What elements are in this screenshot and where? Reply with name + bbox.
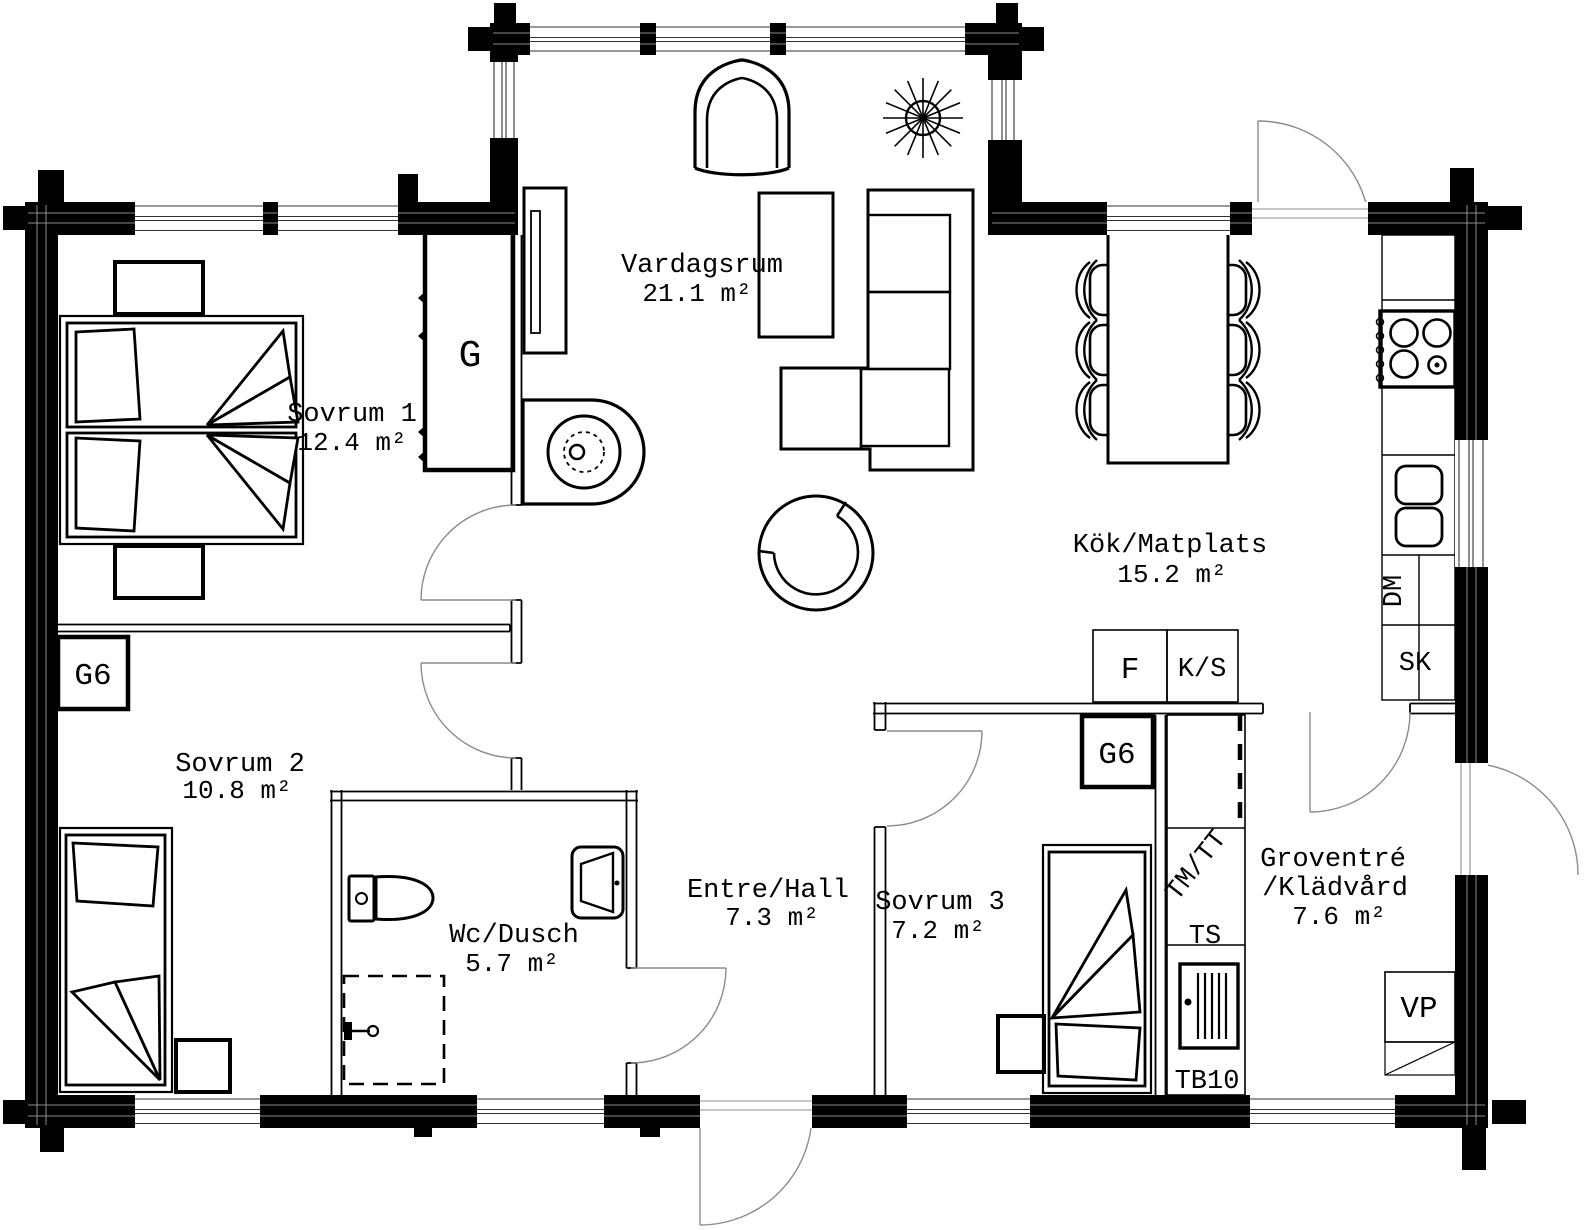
room-name: /Klädvård xyxy=(1262,874,1408,904)
room-name: Groventré xyxy=(1260,845,1406,875)
washbasin xyxy=(572,847,623,918)
room-name: Sovrum 3 xyxy=(875,888,1005,918)
log-corner xyxy=(494,3,516,23)
door-tb10-icon xyxy=(1180,964,1238,1048)
label-g6-sovrum2: G6 xyxy=(74,659,111,694)
kitchen-sink xyxy=(1396,466,1442,546)
log-corner xyxy=(1022,27,1044,51)
label-washer-dryer: TM/TT xyxy=(1161,825,1235,907)
pillow xyxy=(1056,1024,1140,1080)
label-drying-cabinet: TS xyxy=(1189,922,1221,952)
window xyxy=(477,1095,604,1128)
tv-cabinet xyxy=(524,188,566,353)
label-wardrobe-g: G xyxy=(459,335,482,378)
door-opening xyxy=(1455,763,1488,875)
bed-single-sovrum3 xyxy=(998,845,1151,1093)
room-label-sovrum1: Sovrum 1 12.4 m² xyxy=(287,400,417,458)
room-name: Sovrum 1 xyxy=(287,400,417,430)
room-name: Entre/Hall xyxy=(687,876,849,906)
round-chair xyxy=(759,496,873,610)
kitchen-counter xyxy=(1382,235,1455,700)
log-texture xyxy=(28,33,1485,1125)
window xyxy=(135,1095,260,1128)
log-corner xyxy=(640,1128,660,1137)
nightstand xyxy=(998,1016,1044,1072)
label-g6-sovrum3: G6 xyxy=(1098,738,1135,773)
armchair xyxy=(695,60,789,175)
room-area: 21.1 m² xyxy=(642,279,751,309)
exterior-walls xyxy=(3,3,1526,1170)
nightstand xyxy=(115,546,203,598)
window xyxy=(1250,1095,1395,1128)
shower xyxy=(344,976,444,1084)
room-name: Wc/Dusch xyxy=(449,921,579,951)
door-front-entrance xyxy=(700,1113,812,1225)
log-corner xyxy=(3,1100,25,1124)
door-wc xyxy=(631,968,726,1063)
label-fridge: F xyxy=(1121,653,1140,688)
door-opening xyxy=(700,1095,812,1128)
dining-set xyxy=(1077,233,1260,463)
room-area: 7.2 m² xyxy=(891,916,985,946)
window xyxy=(907,1095,1030,1128)
log-corner xyxy=(996,3,1018,23)
stove-cooktop xyxy=(1377,311,1456,387)
room-label-kok: Kök/Matplats 15.2 m² xyxy=(1073,531,1267,590)
label-dishwasher: DM xyxy=(1380,575,1410,607)
pillow xyxy=(73,843,158,906)
window xyxy=(135,202,263,235)
nightstand xyxy=(115,262,203,314)
door-sovrum1 xyxy=(421,505,516,600)
log-corner xyxy=(38,170,64,202)
room-label-entre: Entre/Hall 7.3 m² xyxy=(687,876,849,933)
window xyxy=(278,202,398,235)
log-corner xyxy=(1492,1100,1526,1124)
label-fridge-freezer: K/S xyxy=(1178,655,1227,685)
toilet xyxy=(349,876,433,921)
dining-table xyxy=(1108,233,1228,463)
window xyxy=(530,23,640,55)
nightstand xyxy=(176,1040,230,1092)
log-corner xyxy=(414,1128,432,1137)
room-area: 15.2 m² xyxy=(1117,560,1226,590)
wood-stove xyxy=(523,400,644,504)
log-corner xyxy=(398,174,418,202)
window xyxy=(656,23,770,55)
log-corner xyxy=(468,27,490,51)
room-area: 5.7 m² xyxy=(465,949,559,979)
door-opening xyxy=(1252,202,1368,235)
window xyxy=(786,23,965,55)
bed-double xyxy=(60,262,303,598)
window xyxy=(988,80,1022,140)
label-tall-cabinet: SK xyxy=(1399,649,1432,679)
room-name: Vardagsrum xyxy=(621,251,783,281)
label-door-type: TB10 xyxy=(1175,1067,1240,1097)
pillow xyxy=(76,438,140,531)
floor-plan: Vardagsrum 21.1 m² Sovrum 1 12.4 m² Kök/… xyxy=(0,0,1589,1230)
room-area: 10.8 m² xyxy=(182,776,291,806)
log-corner xyxy=(1450,168,1474,202)
door-sovrum3 xyxy=(887,731,982,826)
room-area: 7.3 m² xyxy=(725,903,819,933)
room-name: Kök/Matplats xyxy=(1073,531,1267,561)
sofa xyxy=(781,190,973,470)
log-corner xyxy=(3,206,25,230)
log-corner xyxy=(40,1128,64,1152)
door-sovrum2 xyxy=(421,663,516,758)
pillow xyxy=(76,329,140,422)
plant xyxy=(883,78,963,158)
room-label-sovrum2: Sovrum 2 10.8 m² xyxy=(175,750,305,806)
room-area: 12.4 m² xyxy=(297,428,406,458)
door-groventre-inner xyxy=(1310,712,1410,812)
room-label-wc: Wc/Dusch 5.7 m² xyxy=(449,921,579,979)
log-corner xyxy=(1462,1128,1486,1170)
room-label-sovrum3: Sovrum 3 7.2 m² xyxy=(875,888,1005,946)
room-label-groventre: Groventré /Klädvård 7.6 m² xyxy=(1260,845,1408,932)
window xyxy=(1107,202,1230,235)
window xyxy=(1455,440,1488,567)
windows xyxy=(135,23,1488,1128)
bed-single-sovrum2 xyxy=(60,828,230,1092)
window xyxy=(490,62,518,138)
room-area: 7.6 m² xyxy=(1292,902,1386,932)
log-corner xyxy=(1488,206,1522,230)
label-heat-pump: VP xyxy=(1400,992,1437,1027)
